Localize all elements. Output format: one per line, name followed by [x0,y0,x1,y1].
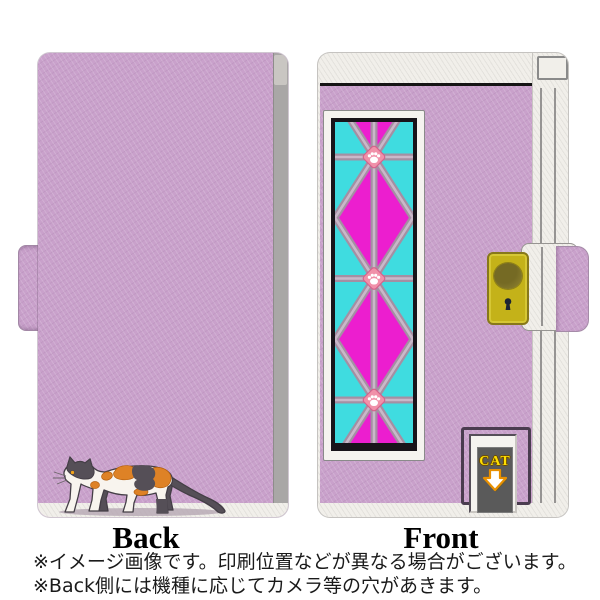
cat-sign-text: CAT [479,454,511,469]
keyhole-icon [503,298,513,311]
front-corner-box [537,56,568,80]
calico-cat-illustration [52,451,227,517]
asanoha-pattern [335,122,413,443]
footer-notes: ※イメージ画像です。印刷位置などが異なる場合がございます。 ※Back側には機種… [33,551,595,598]
strap-stitch-line-1 [541,247,543,326]
footer-note-2: ※Back側には機種に応じてカメラ等の穴があきます。 [33,575,595,599]
footer-note-1: ※イメージ画像です。印刷位置などが異なる場合がございます。 [33,551,595,575]
clasp-magnet-circle [494,263,522,289]
front-top-accent-line [320,83,532,86]
clasp-strap-end [556,246,589,332]
cat-sign: CAT [477,447,513,513]
clasp-button [487,252,529,325]
back-spine-edge [273,53,288,517]
front-bottom-edge [318,503,568,517]
cat-eye [71,471,75,475]
cat-shadow [59,508,223,516]
down-arrow-icon [482,469,508,493]
product-image: CAT Back Front ※イメージ画像です。印刷位置などが異なる場合がござ… [0,0,600,600]
back-spine-notch [274,55,287,85]
back-cover [38,53,288,517]
